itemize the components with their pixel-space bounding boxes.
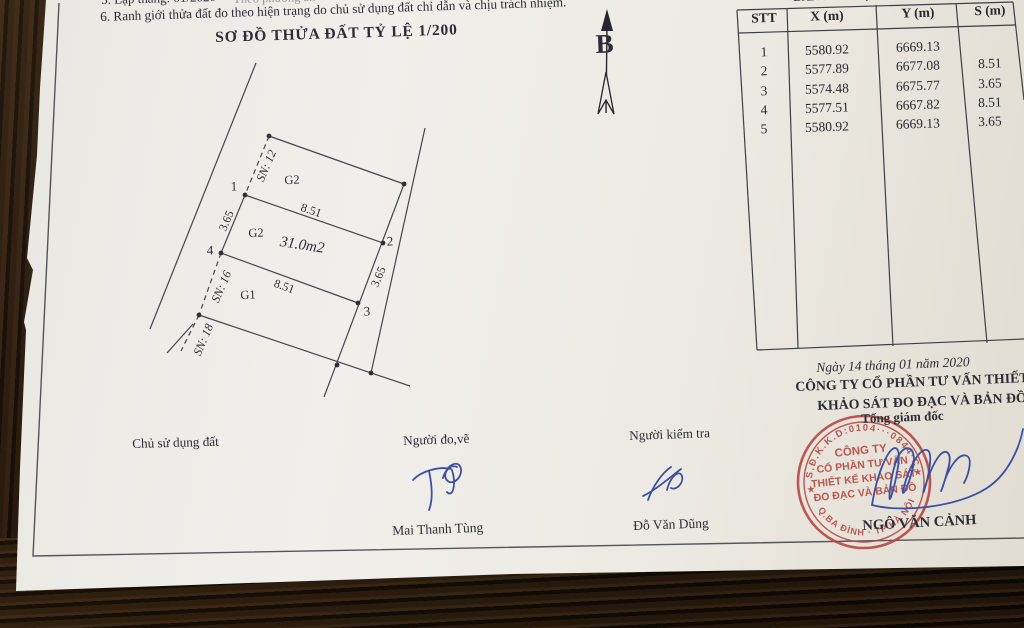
cell-stt: 3 — [742, 82, 787, 99]
neighbor-label-g2-mid: G2 — [248, 226, 264, 241]
cell-x: 5580.92 — [796, 118, 858, 136]
cell-s: 8.51 — [959, 55, 1021, 73]
corner-label-3: 3 — [363, 304, 370, 319]
bottom-boundary — [199, 315, 410, 386]
role-checker: Người kiểm tra — [629, 425, 710, 443]
role-land-user: Chủ sử dụng đất — [132, 434, 219, 451]
signature-nguoi-do-ve — [413, 464, 461, 510]
cell-y: 6677.08 — [887, 57, 949, 75]
name-checker: Đỗ Văn Dũng — [633, 515, 709, 533]
cell-y: 6667.82 — [887, 96, 949, 114]
neighbor-label-g2-top: G2 — [284, 173, 300, 188]
corner-label-2: 2 — [386, 234, 393, 249]
cell-x: 5574.48 — [796, 80, 858, 98]
corner-label-4: 4 — [206, 243, 213, 258]
cell-y: 6675.77 — [887, 77, 949, 95]
neighbor-label-g1: G1 — [240, 288, 256, 303]
cell-x: 5580.92 — [796, 41, 858, 59]
cell-x: 5577.89 — [796, 60, 858, 78]
col-header-x: X (m) — [796, 7, 858, 25]
photo-of-survey-document: { "notes": { "line5": "5. Lập tháng: 01/… — [0, 0, 1024, 628]
director-title: Tổng giám đốc — [861, 409, 944, 427]
cell-x: 5577.51 — [796, 99, 858, 117]
signature-nguoi-kiem-tra — [643, 467, 682, 500]
cell-stt: 1 — [742, 43, 787, 60]
cell-y: 6669.13 — [887, 115, 949, 133]
col-header-s: S (m) — [959, 2, 1021, 20]
col-header-stt: STT — [742, 9, 787, 26]
col-header-y: Y (m) — [887, 4, 949, 22]
cell-s: 3.65 — [959, 75, 1021, 93]
cell-stt: 2 — [742, 62, 787, 79]
name-surveyor: Mai Thanh Tùng — [392, 520, 483, 539]
compass-label: B — [595, 28, 614, 60]
cell-stt: 5 — [742, 120, 787, 137]
north-arrow-icon — [598, 9, 614, 114]
cell-y: 6669.13 — [887, 38, 949, 56]
role-surveyor: Người đo,vẽ — [403, 431, 470, 448]
road-edge-short — [167, 324, 193, 353]
cell-stt: 4 — [742, 101, 787, 118]
cell-s: 3.65 — [959, 113, 1021, 131]
corner-label-1: 1 — [230, 179, 237, 194]
cell-s: 8.51 — [959, 94, 1021, 112]
